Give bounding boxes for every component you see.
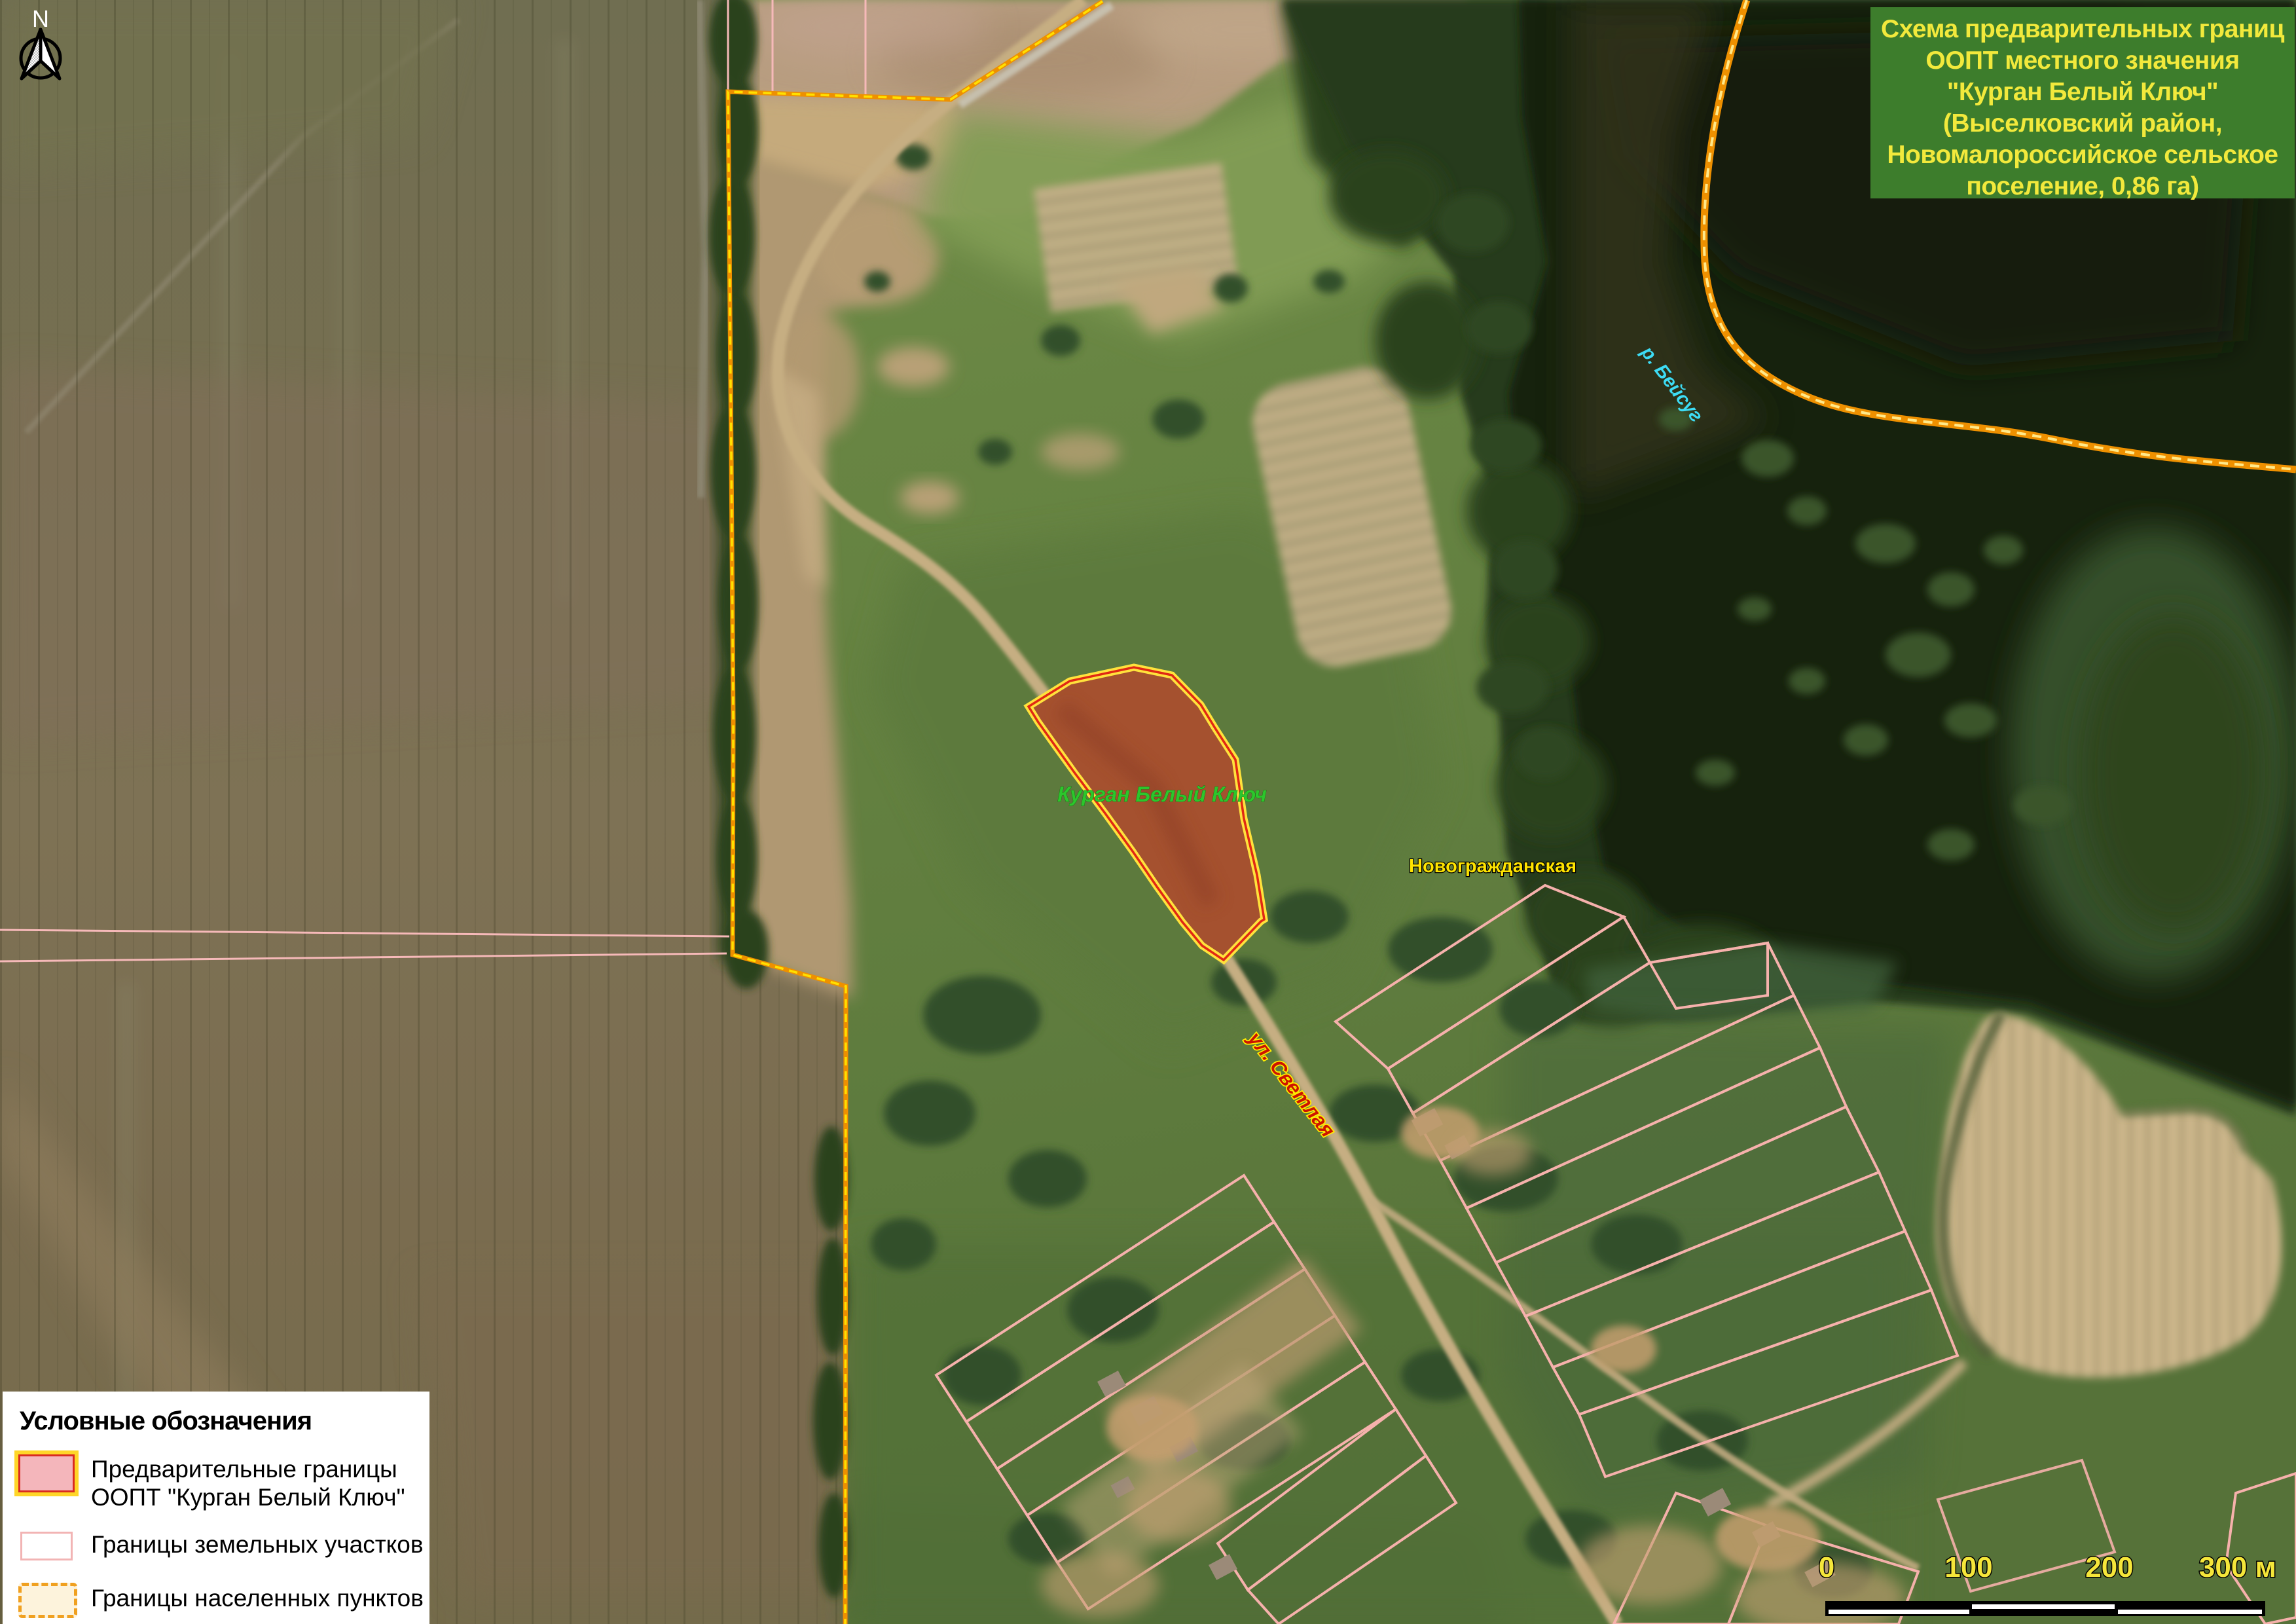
svg-text:200: 200 [2085,1551,2133,1583]
svg-text:300 м: 300 м [2199,1551,2276,1583]
svg-text:Курган Белый Ключ: Курган Белый Ключ [1057,783,1267,806]
svg-text:100: 100 [1944,1551,1992,1583]
svg-text:0: 0 [1819,1551,1834,1583]
svg-text:Новогражданская: Новогражданская [1409,856,1576,877]
